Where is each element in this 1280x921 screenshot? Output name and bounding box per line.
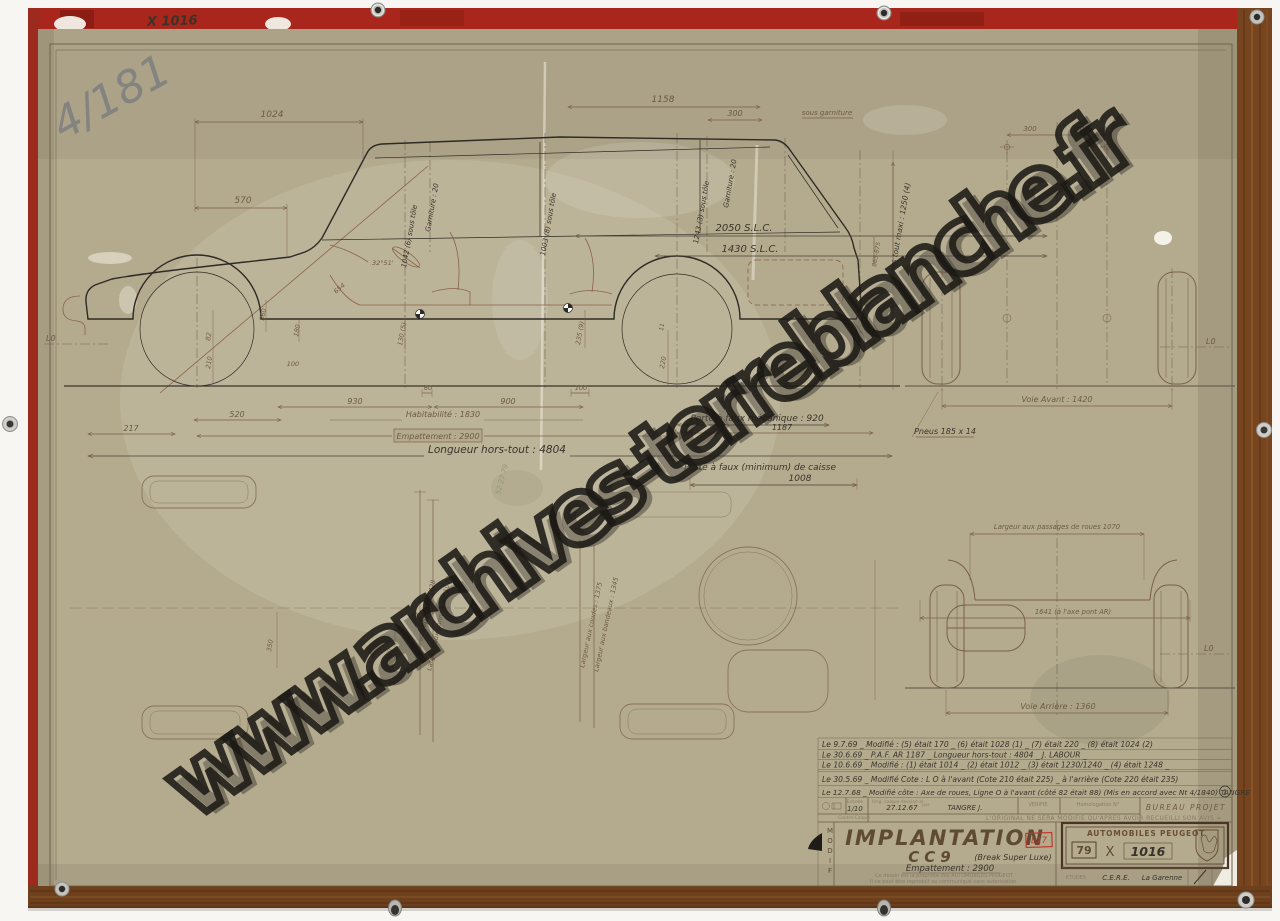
variant-label: (Break Super Luxe) (974, 853, 1051, 862)
sous-garniture-label: sous garniture (802, 109, 853, 117)
dim-300-label: 300 (727, 109, 742, 118)
push-pin (877, 6, 891, 20)
passages-roues-label: Largeur aux passages de roues 1070 (994, 523, 1120, 531)
tack-hole (265, 17, 291, 31)
site-name: La Garenne (1142, 874, 1183, 882)
scanned-blueprint-photo: 1024 570 1158 300 sous garniture Garnitu… (0, 0, 1280, 921)
push-pin (371, 3, 385, 17)
property-notice-line1: Ce dessin est la propriété des AUTOMOBIL… (875, 872, 1014, 879)
e17-stamp: E17 (1031, 836, 1048, 847)
ligne-zero-left-label: L0 (46, 334, 56, 343)
voie-avant-label: Voie Avant : 1420 (1021, 395, 1092, 404)
dim-11-label: 11 (658, 323, 666, 332)
front-dim-300-right-label: 300 (1075, 125, 1089, 133)
push-pin (1238, 892, 1254, 908)
push-pin (878, 900, 891, 916)
dim-520-label: 520 (229, 410, 244, 419)
echelle-value: 1/10 (847, 805, 863, 813)
revision-row: Le 30.6.69 _ P.A.F. AR 1187 _ Longueur h… (822, 751, 1087, 760)
dim-1024-label: 1024 (261, 110, 284, 120)
front-dim-300-left-label: 300 (1023, 125, 1037, 133)
par-label: par (922, 802, 930, 808)
modif-column-label: MODIF (820, 827, 834, 877)
revision-badge: 1 (1223, 789, 1227, 797)
revision-row: Le 10.6.69 _ Modifié : (1) était 1014 _ … (822, 761, 1169, 770)
paper-scuff (1154, 231, 1172, 245)
dim-60-label: 60 (424, 384, 432, 392)
push-pin (3, 417, 18, 432)
dim-217-label: 217 (123, 424, 139, 433)
dim-82-label: 82 (204, 332, 213, 342)
porte-a-faux-caisse-value: 1008 (789, 474, 812, 484)
drawing-title: IMPLANTATION (845, 826, 1045, 850)
ligne-zero-rear-label: L0 (1204, 644, 1214, 653)
push-pin (389, 900, 402, 916)
dim-1158-label: 1158 (652, 95, 675, 105)
etudes-value: C.E.R.E. (1102, 874, 1130, 882)
habitabilite-label: Habitabilité : 1830 (406, 409, 480, 419)
revision-row: Le 9.7.69 _ Modifié : (5) était 170 _ (6… (822, 740, 1153, 749)
slc-1430-label: 1430 S.L.C. (721, 244, 778, 255)
contre-calque-label: Contre-Calque (838, 815, 871, 821)
dim-900-label: 900 (500, 397, 515, 406)
dim-570-label: 570 (234, 196, 251, 206)
plate-code-note: X 1016 (146, 13, 198, 30)
slc-2050-label: 2050 S.L.C. (715, 223, 772, 234)
board-top-red-strip (28, 8, 1272, 31)
property-notice-line2: Il ne peut être reproduit ou communiqué … (870, 878, 1018, 885)
revision-row: Le 30.5.69 _ Modifié Cote : L O à l'avan… (822, 775, 1178, 784)
author-name: TANGRE J. (948, 804, 983, 812)
etudes-label: ETUDES (1066, 875, 1086, 881)
original-notice: L'ORIGINAL NE SERA MODIFIE QU'APRES AVOI… (986, 815, 1222, 822)
ref-series: 79 (1076, 844, 1091, 857)
dim-100-rear-label: 100 (575, 384, 587, 392)
verifie-label: VERIFIE (1028, 802, 1047, 808)
brand-label: AUTOMOBILES PEUGEOT (1087, 829, 1205, 838)
push-pin (55, 882, 69, 896)
porte-a-faux-caisse-label: Porte à faux (minimum) de caisse (684, 463, 837, 473)
blueprint-svg: 1024 570 1158 300 sous garniture Garnitu… (0, 0, 1280, 921)
empattement-label: Empattement : 2900 (396, 432, 479, 441)
push-pin (1250, 10, 1264, 24)
dim-100-front-label: 100 (287, 360, 299, 368)
dim-930-label: 930 (347, 397, 362, 406)
orig-date: 27.12.67 (886, 804, 918, 812)
push-pin (1257, 423, 1272, 438)
homologation-label: Homologation N° (1077, 802, 1120, 808)
angle-label: 32°51' (372, 259, 394, 267)
longueur-hors-tout-label: Longueur hors-tout : 4804 (428, 444, 566, 456)
pneus-label: Pneus 185 x 14 (914, 427, 976, 436)
ligne-zero-front-label: L0 (1206, 337, 1216, 346)
revision-row: Le 12.7.68 _ Modifié côte : Axe de roues… (822, 788, 1250, 797)
ref-letter: X (1106, 845, 1115, 860)
bureau-projet-label: BUREAU PROJET (1146, 803, 1226, 812)
dim-1187-label: 1187 (772, 423, 793, 432)
axe-pont-label: 1641 (à l'axe pont AR) (1035, 608, 1111, 616)
porte-a-faux-meca-label: Porte à faux mécanique : 920 (690, 413, 824, 424)
voie-arriere-label: Voie Arrière : 1360 (1020, 701, 1095, 711)
ref-number: 1016 (1131, 844, 1166, 859)
